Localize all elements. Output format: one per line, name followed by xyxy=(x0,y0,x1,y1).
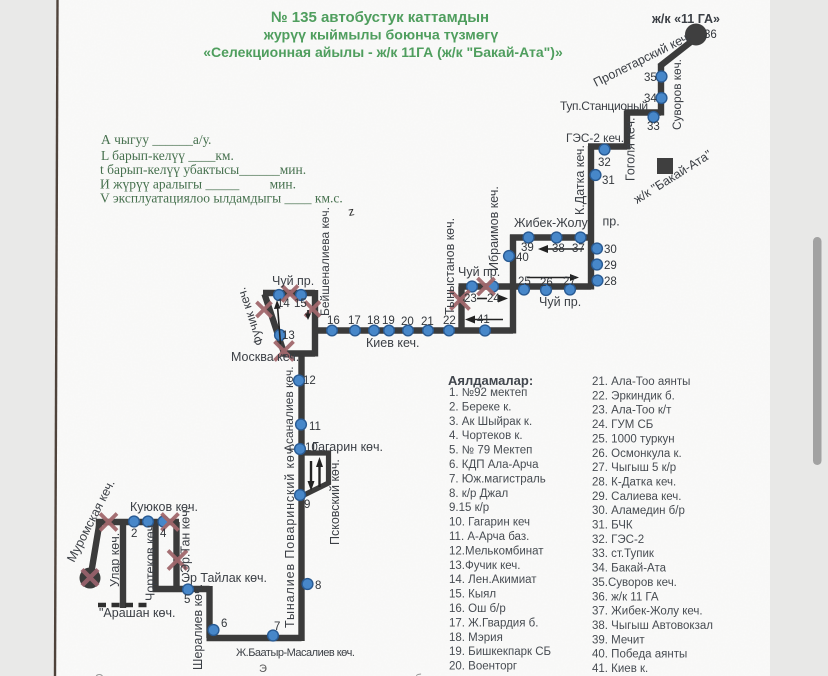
svg-text:4. Чортеков к.: 4. Чортеков к. xyxy=(449,430,523,442)
svg-text:И жүрүү аралыгы _____: И жүрүү аралыгы _____ мин. xyxy=(100,177,296,192)
svg-text:11. А-Арча баз.: 11. А-Арча баз. xyxy=(449,531,529,543)
svg-text:25. 1000 туркун: 25. 1000 туркун xyxy=(592,433,675,445)
svg-text:12.Мелькомбинат: 12.Мелькомбинат xyxy=(449,545,544,557)
svg-text:Аялдамалар:: Аялдамалар: xyxy=(448,373,533,388)
svg-text:35: 35 xyxy=(644,72,657,84)
svg-text:К.Датка кеч.: К.Датка кеч. xyxy=(573,145,587,215)
svg-text:13.Фучик кеч.: 13.Фучик кеч. xyxy=(449,560,520,572)
svg-text:23: 23 xyxy=(464,293,477,305)
svg-text:13: 13 xyxy=(282,330,295,342)
svg-text:10. Гагарин кеч: 10. Гагарин кеч xyxy=(449,517,530,529)
svg-text:29: 29 xyxy=(604,260,617,272)
svg-text:Киев кеч.: Киев кеч. xyxy=(366,336,419,350)
svg-text:Тыныстанов көч.: Тыныстанов көч. xyxy=(443,218,457,315)
svg-text:36. ж/к 11 ГА: 36. ж/к 11 ГА xyxy=(592,591,659,603)
svg-text:21: 21 xyxy=(421,316,434,328)
svg-text:24: 24 xyxy=(487,293,500,305)
svg-text:16. Ош б/р: 16. Ош б/р xyxy=(449,603,506,615)
svg-text:Гагарин көч.: Гагарин көч. xyxy=(312,440,383,454)
svg-text:8. к/р Джал: 8. к/р Джал xyxy=(449,488,508,500)
svg-text:39. Мечит: 39. Мечит xyxy=(592,634,645,646)
svg-text:Туп.Станционый: Туп.Станционый xyxy=(560,99,648,113)
svg-text:30: 30 xyxy=(604,244,617,256)
svg-text:11: 11 xyxy=(309,421,321,433)
svg-text:18. Мэрия: 18. Мэрия xyxy=(449,632,503,644)
svg-text:Чуй пр.: Чуй пр. xyxy=(458,265,500,279)
svg-text:12: 12 xyxy=(303,375,316,387)
svg-text:5: 5 xyxy=(184,594,190,606)
svg-text:2: 2 xyxy=(131,528,137,540)
svg-text:28. К-Датка кеч.: 28. К-Датка кеч. xyxy=(592,476,676,488)
svg-text:«Селекционная айылы - ж/к 11ГА: «Селекционная айылы - ж/к 11ГА (ж/к "Бак… xyxy=(203,44,563,60)
svg-text:9: 9 xyxy=(304,499,310,511)
svg-text:Улар көч.: Улар көч. xyxy=(108,533,122,587)
svg-text:38. Чыгыш Автовокзал: 38. Чыгыш Автовокзал xyxy=(592,620,713,632)
svg-text:20: 20 xyxy=(401,316,414,328)
svg-text:14. Лен.Акимиат: 14. Лен.Акимиат xyxy=(449,574,537,586)
svg-text:41: 41 xyxy=(477,314,490,326)
svg-text:Тыналиев Поваринский көч.: Тыналиев Поваринский көч. xyxy=(283,442,297,628)
svg-text:27: 27 xyxy=(563,276,576,288)
svg-text:Суворов көч.: Суворов көч. xyxy=(670,59,684,130)
svg-text:Москва кеч.: Москва кеч. xyxy=(231,350,299,364)
svg-text:Э: Э xyxy=(259,663,267,675)
svg-text:L барып-келүү ____км.: L барып-келүү ____км. xyxy=(101,148,234,163)
svg-text:23. Ала-Тоо к/т: 23. Ала-Тоо к/т xyxy=(592,405,672,417)
svg-text:Бейшеналиева көч.: Бейшеналиева көч. xyxy=(318,207,332,316)
svg-text:32. ГЭС-2: 32. ГЭС-2 xyxy=(592,534,644,546)
svg-text:38: 38 xyxy=(552,243,565,255)
svg-text:Гоголя кеч.: Гоголя кеч. xyxy=(624,117,638,181)
svg-text:26: 26 xyxy=(540,277,553,289)
svg-text:Чуй пр.: Чуй пр. xyxy=(539,295,581,309)
svg-text:33. ст.Тупик: 33. ст.Тупик xyxy=(592,548,655,560)
svg-text:29. Салиева кеч.: 29. Салиева кеч. xyxy=(592,491,681,503)
svg-text:31: 31 xyxy=(602,175,615,187)
svg-text:26. Осмонкула к.: 26. Осмонкула к. xyxy=(592,448,682,460)
svg-text:41. Киев к.: 41. Киев к. xyxy=(592,663,648,675)
svg-text:36: 36 xyxy=(704,29,717,41)
svg-text:пр.: пр. xyxy=(603,215,620,229)
svg-text:30. Аламедин б/р: 30. Аламедин б/р xyxy=(592,505,685,517)
svg-text:33: 33 xyxy=(647,121,660,133)
svg-text:Жибек-Жолу: Жибек-Жолу xyxy=(514,216,588,230)
svg-text:Эр.Тан көч.: Эр.Тан көч. xyxy=(179,507,193,573)
svg-text:2. Береке к.: 2. Береке к. xyxy=(449,401,512,413)
svg-text:20. Военторг: 20. Военторг xyxy=(449,661,517,673)
svg-text:Эскертуу аялдамалардын аталыш: Эскертуу аялдамалардын аталыштары шартту… xyxy=(95,672,549,676)
svg-text:журүү кыймылы боюнча түзмөгү: журүү кыймылы боюнча түзмөгү xyxy=(263,28,499,44)
svg-text:21. Ала-Тоо аянты: 21. Ала-Тоо аянты xyxy=(592,376,690,388)
svg-text:16: 16 xyxy=(327,315,340,327)
svg-text:4: 4 xyxy=(160,528,167,540)
svg-text:7. Юж.магистраль: 7. Юж.магистраль xyxy=(449,473,546,485)
svg-text:5. № 79 Мектеп: 5. № 79 Мектеп xyxy=(449,445,532,457)
svg-text:8: 8 xyxy=(315,580,321,592)
svg-text:1. №92 мектеп: 1. №92 мектеп xyxy=(449,387,527,399)
svg-text:31. БЧК: 31. БЧК xyxy=(592,520,633,532)
svg-text:Псковский көч.: Псковский көч. xyxy=(328,459,342,545)
svg-text:18: 18 xyxy=(367,315,380,327)
svg-text:37. Жибек-Жолу кеч.: 37. Жибек-Жолу кеч. xyxy=(592,606,703,618)
svg-text:9.15 к/р: 9.15 к/р xyxy=(449,502,489,514)
svg-text:Шералиев көч.: Шералиев көч. xyxy=(191,584,205,670)
svg-text:V эксплуатациялоо ылдамдыгы __: V эксплуатациялоо ылдамдыгы ____ км.с. xyxy=(100,191,343,206)
svg-text:15. Кыял: 15. Кыял xyxy=(449,589,496,601)
svg-text:22: 22 xyxy=(443,315,456,327)
svg-text:32: 32 xyxy=(598,157,611,169)
svg-text:22. Эркиндик б.: 22. Эркиндик б. xyxy=(592,390,675,402)
svg-text:Ибраимов кеч.: Ибраимов кеч. xyxy=(487,186,501,271)
svg-text:Ж.Баатыр-Масалиев көч.: Ж.Баатыр-Масалиев көч. xyxy=(236,647,355,659)
svg-text:Чортеков көч: Чортеков көч xyxy=(144,525,158,601)
svg-text:t барып-келүү убактысы______ми: t барып-келүү убактысы______мин. xyxy=(100,162,306,177)
svg-text:34: 34 xyxy=(644,93,657,105)
svg-text:15: 15 xyxy=(294,298,307,310)
svg-text:34. Бакай-Ата: 34. Бакай-Ата xyxy=(592,563,667,575)
svg-text:28: 28 xyxy=(604,276,617,288)
svg-text:35.Суворов кеч.: 35.Суворов кеч. xyxy=(592,577,677,589)
svg-text:27. Чыгыш 5 к/р: 27. Чыгыш 5 к/р xyxy=(592,462,676,474)
svg-text:17: 17 xyxy=(348,315,361,327)
svg-text:7: 7 xyxy=(274,621,280,633)
svg-text:6. КДП Ала-Арча: 6. КДП Ала-Арча xyxy=(449,459,539,471)
svg-text:17. Ж.Гвардия б.: 17. Ж.Гвардия б. xyxy=(449,617,538,629)
svg-text:40. Победа аянты: 40. Победа аянты xyxy=(592,649,687,661)
svg-text:Эр Тайлак көч.: Эр Тайлак көч. xyxy=(181,571,267,585)
svg-text:3. Ак Шыйрак к.: 3. Ак Шыйрак к. xyxy=(449,416,532,428)
svg-text:37: 37 xyxy=(572,243,585,255)
svg-text:10: 10 xyxy=(305,442,318,454)
svg-text:Чуй пр.: Чуй пр. xyxy=(272,274,314,288)
svg-text:Асаналиев көч.: Асаналиев көч. xyxy=(282,366,296,452)
svg-text:25: 25 xyxy=(518,276,531,288)
svg-text:19. Бишкекпарк СБ: 19. Бишкекпарк СБ xyxy=(449,646,551,658)
svg-text:ж/к «11 ГА»: ж/к «11 ГА» xyxy=(651,12,720,26)
svg-text:ГЭС-2 кеч.: ГЭС-2 кеч. xyxy=(566,131,624,145)
svg-text:А чыгуу ______а/у.: А чыгуу ______а/у. xyxy=(101,132,211,147)
svg-text:"Арашан көч.: "Арашан көч. xyxy=(99,606,175,620)
svg-text:№ 135 автобустук каттамдын: № 135 автобустук каттамдын xyxy=(271,9,489,26)
svg-text:6: 6 xyxy=(221,618,227,630)
svg-text:19: 19 xyxy=(382,315,395,327)
svg-text:40: 40 xyxy=(516,252,529,264)
svg-text:14: 14 xyxy=(277,298,290,310)
svg-text:24. ГУМ СБ: 24. ГУМ СБ xyxy=(592,419,653,431)
